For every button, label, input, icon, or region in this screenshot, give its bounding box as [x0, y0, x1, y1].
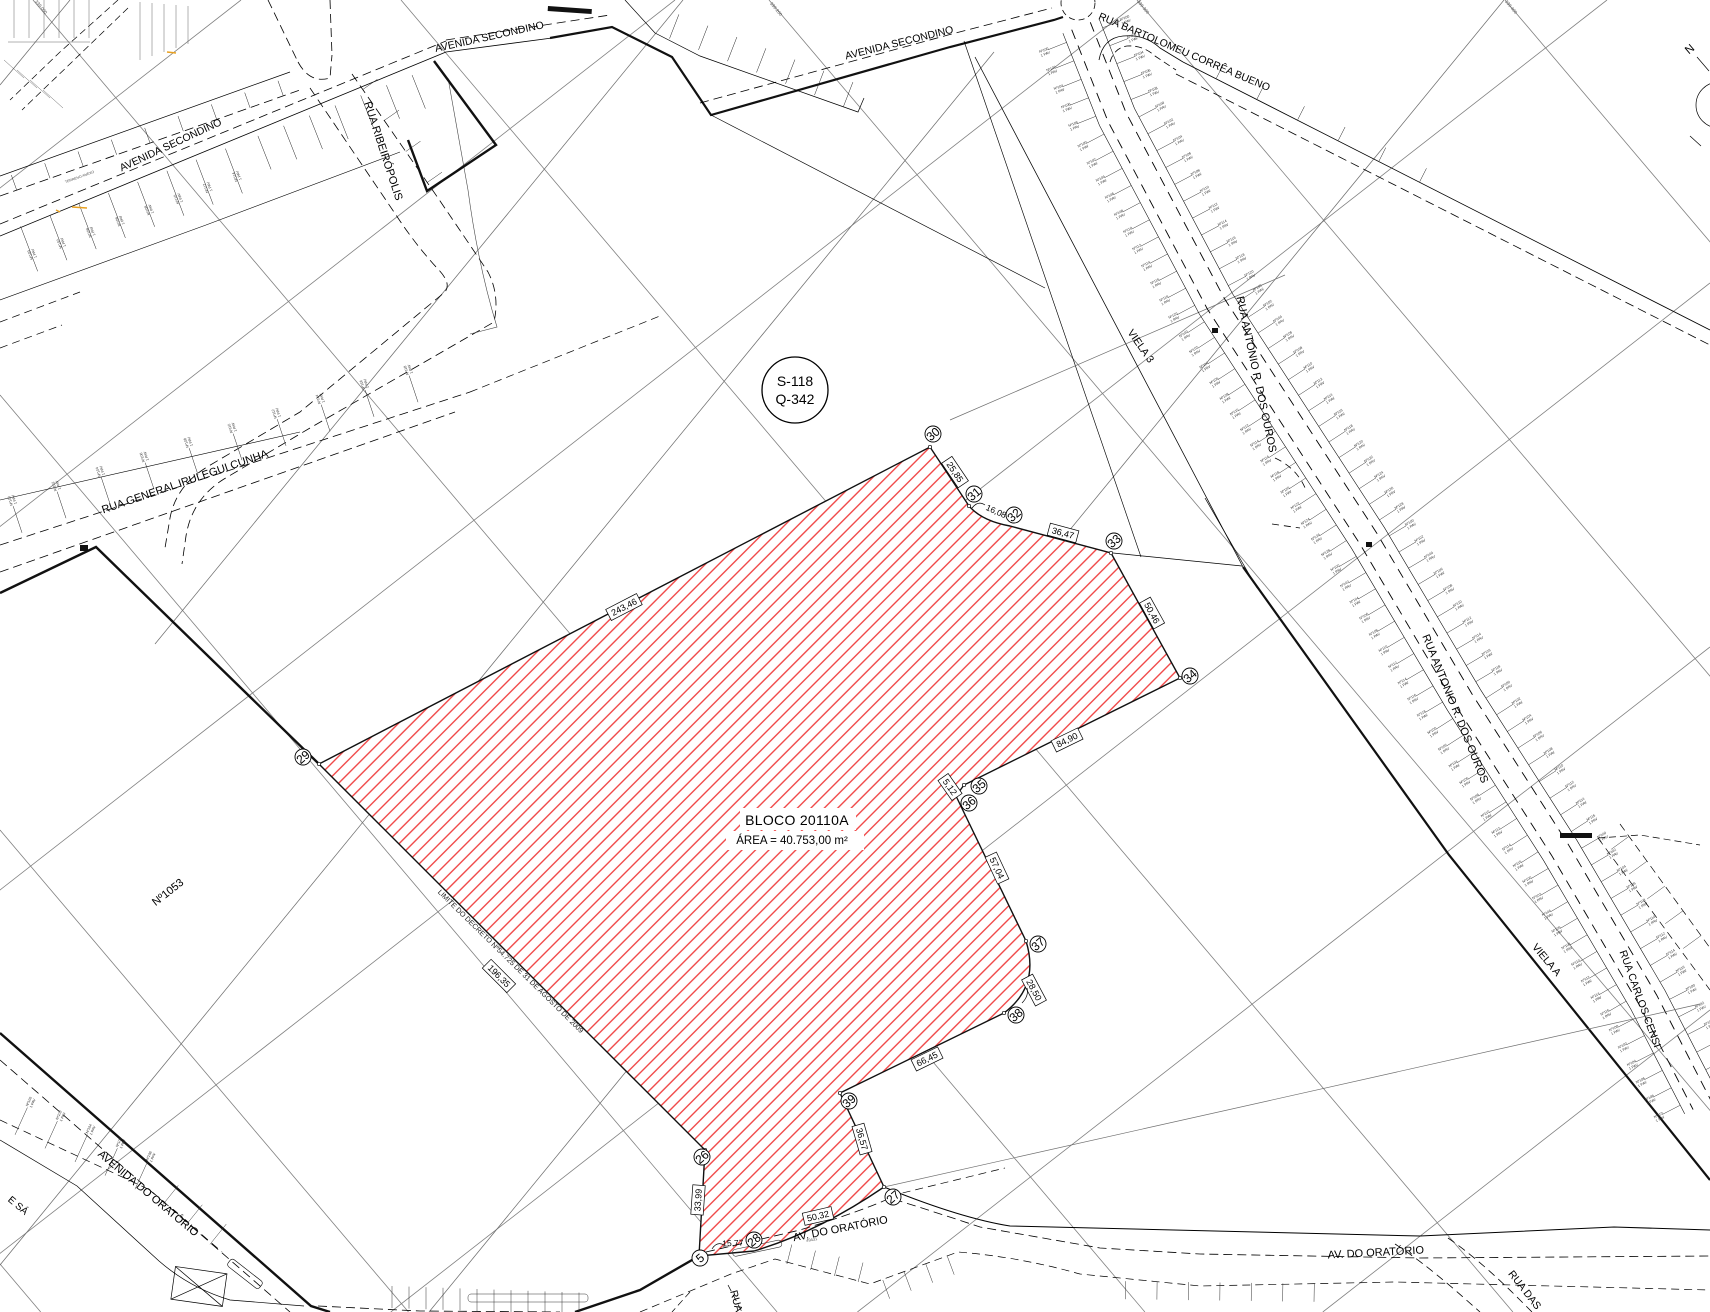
- svg-text:S-118: S-118: [777, 373, 814, 389]
- svg-text:ÁREA = 40.753,00 m²: ÁREA = 40.753,00 m²: [736, 834, 848, 847]
- svg-text:BLOCO 20110A: BLOCO 20110A: [745, 812, 849, 828]
- svg-text:15,77: 15,77: [722, 1237, 744, 1248]
- svg-text:33,99: 33,99: [692, 1188, 704, 1211]
- svg-text:Q-342: Q-342: [776, 391, 815, 407]
